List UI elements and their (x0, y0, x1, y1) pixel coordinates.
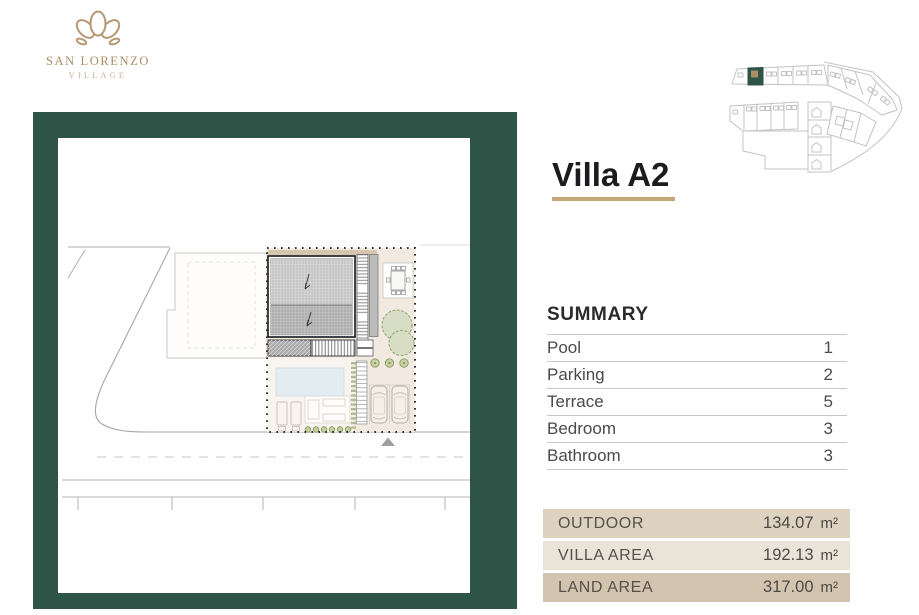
area-label: LAND AREA (558, 579, 653, 597)
summary-value: 3 (824, 419, 833, 439)
floor-plan-frame (33, 112, 517, 609)
area-value: 134.07 (763, 514, 813, 533)
development-site-map (720, 54, 910, 182)
summary-row: Terrace 5 (547, 389, 847, 416)
summary-value: 1 (824, 338, 833, 358)
summary-value: 3 (824, 446, 833, 466)
summary-label: Parking (547, 365, 605, 385)
terrace-dining-set (383, 263, 413, 298)
brand-name: SAN LORENZO (38, 54, 158, 69)
outdoor-sofa-set (305, 396, 350, 423)
car (392, 386, 408, 423)
area-label: VILLA AREA (558, 547, 654, 565)
summary-row: Bedroom 3 (547, 416, 847, 443)
area-label: OUTDOOR (558, 515, 644, 533)
area-summary: OUTDOOR 134.07 m² VILLA AREA 192.13 m² L… (543, 509, 850, 605)
car (371, 386, 387, 423)
area-row: OUTDOOR 134.07 m² (543, 509, 850, 538)
side-wall (370, 255, 379, 337)
area-unit: m² (821, 579, 839, 596)
summary-label: Bathroom (547, 446, 621, 466)
summary-label: Bedroom (547, 419, 616, 439)
lotus-flower-icon (68, 8, 128, 48)
villa-building (268, 255, 378, 357)
summary-value: 5 (824, 392, 833, 412)
pool (276, 368, 344, 396)
summary-table: SUMMARY Pool 1 Parking 2 Terrace 5 Bedro… (547, 304, 847, 470)
summary-label: Terrace (547, 392, 604, 412)
area-unit: m² (821, 547, 839, 564)
area-row: LAND AREA 317.00 m² (543, 573, 850, 602)
area-row: VILLA AREA 192.13 m² (543, 541, 850, 570)
summary-row: Parking 2 (547, 362, 847, 389)
summary-value: 2 (824, 365, 833, 385)
floor-plan-drawing (58, 138, 470, 593)
brand-tagline: VILLAGE (38, 71, 158, 80)
floor-plan-canvas (58, 138, 470, 593)
area-unit: m² (821, 515, 839, 532)
summary-row: Bathroom 3 (547, 443, 847, 470)
area-value: 192.13 (763, 546, 813, 565)
entrance-arrow-icon (381, 438, 395, 447)
summary-heading: SUMMARY (547, 304, 847, 335)
summary-row: Pool 1 (547, 335, 847, 362)
title-underline (552, 197, 675, 201)
summary-label: Pool (547, 338, 581, 358)
neighbour-plot (167, 253, 267, 358)
louver-strip (357, 255, 368, 354)
area-value: 317.00 (763, 578, 813, 597)
page-title: Villa A2 (552, 156, 669, 194)
brand-logo: SAN LORENZO VILLAGE (38, 8, 158, 80)
map-highlight-plot (748, 68, 763, 86)
shrubs (371, 359, 408, 367)
stepping-path (357, 361, 368, 424)
